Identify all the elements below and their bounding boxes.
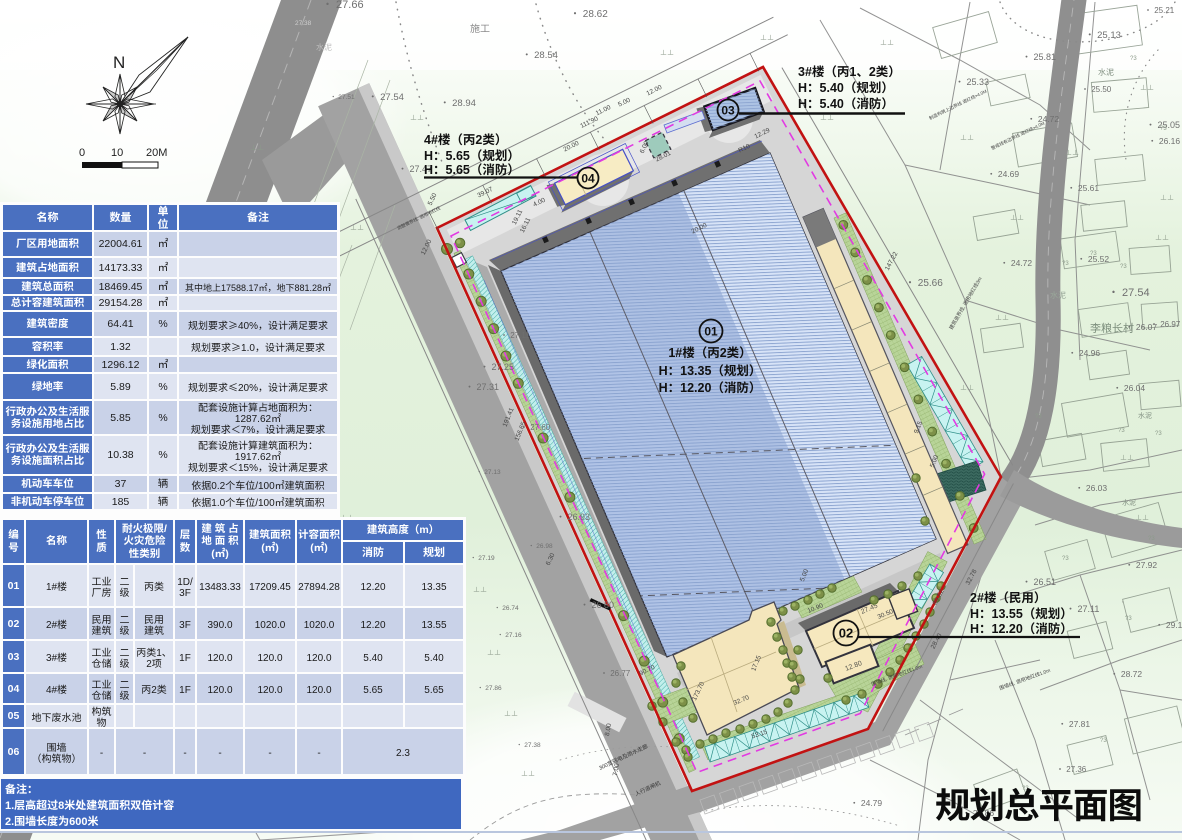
svg-text:?3: ?3 (1148, 533, 1155, 542)
svg-text:施工: 施工 (470, 20, 490, 35)
svg-text:· 26.98: · 26.98 (528, 540, 553, 550)
svg-text:· 27.11: · 27.11 (500, 330, 530, 341)
svg-text:H：12.20（消防）: H：12.20（消防） (659, 377, 762, 396)
svg-text:· 25.21: · 25.21 (1144, 5, 1175, 16)
svg-text:0: 0 (79, 147, 85, 159)
svg-text:⊥⊥: ⊥⊥ (1065, 148, 1079, 158)
svg-text:· 26.04: · 26.04 (1113, 382, 1145, 394)
svg-text:· 28.72: · 28.72 (1110, 668, 1142, 680)
svg-text:⊥⊥: ⊥⊥ (880, 38, 894, 48)
svg-text:· 25.50: · 25.50 (1081, 84, 1112, 95)
svg-text:?3: ?3 (1118, 425, 1125, 434)
svg-text:水泥: 水泥 (316, 42, 332, 53)
svg-text:· 27.92: · 27.92 (1125, 559, 1157, 571)
svg-text:⊥⊥: ⊥⊥ (960, 383, 974, 393)
svg-text:?3: ?3 (1062, 258, 1069, 267)
svg-text:· 28.54: · 28.54 (522, 47, 558, 61)
svg-text:· 27.54: · 27.54 (1108, 284, 1150, 300)
svg-text:⊥⊥: ⊥⊥ (350, 223, 364, 233)
svg-text:⊥⊥: ⊥⊥ (410, 113, 424, 123)
svg-text:· 27.25: · 27.25 (480, 360, 514, 373)
svg-text:H：12.20（消防）: H：12.20（消防） (970, 618, 1073, 637)
svg-text:· 27.60: · 27.60 (520, 422, 551, 433)
svg-text:· 27.31: · 27.31 (465, 380, 499, 393)
svg-text:· 27.81: · 27.81 (1058, 718, 1090, 730)
svg-text:· 25.13: · 25.13 (1085, 27, 1121, 41)
svg-text:· 28.62: · 28.62 (570, 5, 608, 20)
svg-text:· 27.16: · 27.16 (497, 629, 522, 639)
svg-text:· 27.13: · 27.13 (476, 466, 501, 476)
svg-text:水泥: 水泥 (1050, 290, 1066, 301)
svg-text:⊥⊥: ⊥⊥ (504, 709, 518, 719)
svg-text:?3: ?3 (1160, 123, 1167, 132)
svg-text:?3: ?3 (1130, 53, 1137, 62)
svg-text:· 26.74: · 26.74 (494, 602, 519, 612)
svg-text:10: 10 (111, 147, 123, 159)
svg-text:⊥⊥: ⊥⊥ (1160, 193, 1174, 203)
svg-text:水泥: 水泥 (1138, 411, 1152, 421)
svg-text:N: N (113, 53, 125, 72)
svg-text:?3: ?3 (1090, 248, 1097, 257)
svg-text:02: 02 (839, 626, 853, 641)
svg-text:规划总平面图: 规划总平面图 (935, 778, 1142, 829)
svg-text:⊥⊥: ⊥⊥ (250, 143, 264, 153)
svg-text:· 27.66: · 27.66 (322, 0, 364, 12)
svg-text:· 27.54: · 27.54 (368, 89, 404, 103)
svg-text:⊥⊥: ⊥⊥ (473, 585, 487, 595)
svg-text:⊥⊥: ⊥⊥ (760, 33, 774, 43)
svg-text:· 27.86: · 27.86 (477, 682, 502, 692)
svg-text:· 26.80: · 26.80 (580, 598, 614, 611)
svg-text:· 29.1: · 29.1 (1155, 619, 1182, 631)
svg-text:01: 01 (704, 324, 718, 338)
svg-text:?3: ?3 (1120, 261, 1127, 270)
svg-text:H：5.65（消防）: H：5.65（消防） (424, 159, 520, 178)
svg-text:⊥⊥: ⊥⊥ (1120, 453, 1134, 463)
svg-text:H：5.40（消防）: H：5.40（消防） (798, 93, 894, 112)
svg-text:⊥⊥: ⊥⊥ (1155, 233, 1169, 243)
svg-text:· 25.61: · 25.61 (1067, 182, 1099, 194)
svg-text:· 24.79: · 24.79 (850, 797, 882, 809)
svg-text:1#楼（丙2类）: 1#楼（丙2类） (668, 342, 751, 361)
svg-text:⊥⊥: ⊥⊥ (995, 313, 1009, 323)
svg-text:· 27.51: · 27.51 (330, 91, 355, 101)
svg-text:· 26.77: · 26.77 (600, 668, 631, 679)
svg-text:⊥⊥: ⊥⊥ (1140, 83, 1154, 93)
svg-text:?3: ?3 (1155, 428, 1162, 437)
svg-text:· 26.97: · 26.97 (1150, 319, 1181, 330)
svg-text:?3: ?3 (1035, 411, 1042, 420)
svg-text:· 27.38: · 27.38 (516, 739, 541, 749)
svg-text:03: 03 (721, 103, 735, 117)
svg-text:⊥⊥: ⊥⊥ (521, 769, 535, 779)
svg-text:· 27.19: · 27.19 (470, 552, 495, 562)
svg-text:?3: ?3 (1100, 735, 1107, 744)
svg-text:· 24.69: · 24.69 (987, 168, 1019, 180)
svg-text:· 27.36: · 27.36 (1056, 764, 1087, 775)
svg-text:水泥: 水泥 (1122, 498, 1136, 508)
svg-text:· 24.96: · 24.96 (1068, 347, 1100, 359)
svg-text:⊥⊥: ⊥⊥ (1010, 213, 1024, 223)
svg-text:27.38: 27.38 (295, 17, 312, 27)
svg-text:20M: 20M (146, 147, 167, 159)
svg-text:水泥: 水泥 (1098, 67, 1114, 78)
svg-text:?3: ?3 (1062, 553, 1069, 562)
svg-text:· 24.72: · 24.72 (1000, 257, 1032, 269)
svg-text:⊥⊥: ⊥⊥ (960, 133, 974, 143)
svg-text:· 25.81: · 25.81 (1022, 50, 1056, 63)
svg-text:· 28.94: · 28.94 (440, 95, 476, 109)
svg-text:?3: ?3 (1125, 613, 1132, 622)
svg-text:04: 04 (581, 171, 595, 185)
svg-text:· 26.16: · 26.16 (1148, 135, 1180, 147)
svg-text:· 25.33: · 25.33 (955, 75, 989, 88)
svg-text:李粮长村: 李粮长村 (1090, 320, 1134, 336)
svg-text:⊥⊥: ⊥⊥ (487, 648, 501, 658)
svg-text:· 25.66: · 25.66 (905, 274, 943, 289)
svg-text:⊥⊥: ⊥⊥ (660, 48, 674, 58)
svg-text:⊥⊥: ⊥⊥ (1135, 513, 1149, 523)
svg-text:· 26.03: · 26.03 (1075, 482, 1107, 494)
svg-text:· 26.93: · 26.93 (556, 510, 590, 523)
